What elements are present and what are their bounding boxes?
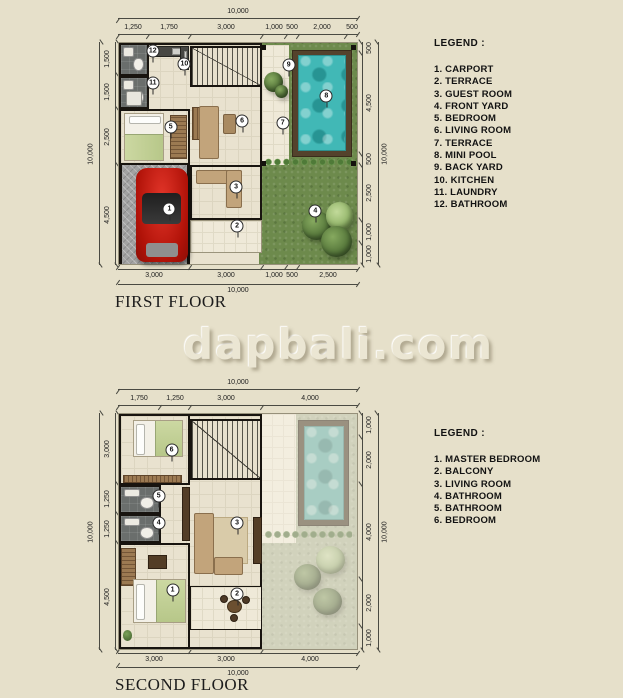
legend-item: 8. MINI POOL [434,150,619,162]
legend-item: 3. GUEST ROOM [434,89,619,101]
dimension-value: 1,000 [366,245,374,263]
ground-level-view-faded [259,414,357,649]
room-number-badge: 2 [231,587,244,600]
balcony-table [227,600,241,613]
dimension-value: 4,000 [301,656,319,664]
sf-dim-top-segments: 1,7501,2503,0004,000 [118,395,358,408]
dimension-value: 2,000 [366,452,374,470]
staircase [190,419,261,480]
dimension-value: 500 [366,42,374,54]
faded-hedge [264,529,352,540]
room-number-badge: 8 [320,89,333,102]
ff-dim-top-segments: 1,2501,7503,0001,0005002,000500 [118,24,358,37]
room-number-badge: 6 [236,115,249,128]
room-number-badge: 3 [231,517,244,530]
legend-item: 11. LAUNDRY [434,187,619,199]
living-room-sofa-l [214,557,243,575]
second-floor-legend: LEGEND : 1. MASTER BEDROOM2. BALCONY3. L… [434,428,619,528]
second-floor-plan: 123456 [118,413,358,650]
dimension-value: 4,000 [301,395,319,403]
master-bedroom-bed [133,579,185,624]
ff-dim-right-segments: 5004,5005002,5001,0001,000 [361,42,374,265]
room-number-badge: 7 [276,117,289,130]
legend-title: LEGEND : [434,428,619,439]
hedge-row [264,157,352,166]
dimension-value: 2,500 [319,272,337,280]
dimension-value: 4,500 [104,206,112,224]
mini-pool-deck [292,50,353,157]
legend-item: 2. TERRACE [434,76,619,88]
dimension-value: 2,500 [104,128,112,146]
dimension-value: 1,250 [104,490,112,508]
dimension-value: 2,000 [366,594,374,612]
watermark: dapbali.com [183,320,494,369]
bedroom-6-shelf [123,475,183,483]
ff-dim-left-total: 10,000 [88,42,101,265]
dimension-value: 1,500 [104,50,112,68]
dimension-value: 3,000 [217,272,235,280]
dimension-value: 2,500 [366,184,374,202]
sf-dim-left-total: 10,000 [88,413,101,650]
faded-tree [294,564,321,590]
dimension-value: 1,000 [366,416,374,434]
room-number-badge: 3 [230,180,243,193]
second-floor-label: SECOND FLOOR [115,675,249,695]
faded-pool-deck [298,420,349,526]
legend-item: 4. BATHROOM [434,491,619,503]
dimension-value: 500 [286,24,298,32]
hall-cabinet [182,487,190,541]
bedroom-5-bed [124,113,164,161]
dimension-value: 3,000 [217,395,235,403]
mini-pool-water [298,55,346,151]
dimension-value: 3,000 [217,656,235,664]
legend-item: 5. BEDROOM [434,113,619,125]
sf-dim-right-total: 10,000 [377,413,390,650]
legend-items: 1. CARPORT2. TERRACE3. GUEST ROOM4. FRON… [434,64,619,212]
legend-item: 6. LIVING ROOM [434,125,619,137]
legend-item: 9. BACK YARD [434,162,619,174]
dimension-value: 1,000 [366,629,374,647]
room-number-badge: 1 [166,584,179,597]
room-number-badge: 2 [231,220,244,233]
dimension-value: 500 [286,272,298,280]
staircase [190,46,261,87]
dimension-value: 4,000 [366,523,374,541]
dimension-value: 1,000 [265,272,283,280]
dimension-value: 1,000 [366,223,374,241]
room-number-badge: 4 [152,517,165,530]
dimension-value: 3,000 [217,24,235,32]
legend-item: 2. BALCONY [434,466,619,478]
room-number-badge: 4 [309,204,322,217]
first-floor-legend: LEGEND : 1. CARPORT2. TERRACE3. GUEST RO… [434,38,619,212]
ff-dim-left-segments: 1,5001,5002,5004,500 [104,42,117,265]
living-room-table [223,114,236,134]
dimension-value: 4,500 [104,588,112,606]
room-number-badge: 11 [146,76,159,89]
dimension-value: 500 [346,24,358,32]
legend-item: 7. TERRACE [434,138,619,150]
dimension-value: 1,750 [160,24,178,32]
sf-dim-left-segments: 3,0001,2501,2504,500 [104,413,117,650]
plant [123,630,133,641]
terrace-2-floor [190,220,261,253]
living-room-sofa [199,106,219,159]
room-number-badge: 6 [165,443,178,456]
dimension-value: 1,750 [130,395,148,403]
boundary-post [351,161,356,166]
dimension-value: 2,000 [313,24,331,32]
faded-tree-2 [313,588,342,615]
dimension-value: 4,500 [366,95,374,113]
legend-item: 3. LIVING ROOM [434,479,619,491]
dimension-value: 1,250 [124,24,142,32]
sf-dim-top-total: 10,000 [118,379,358,392]
sf-dim-bottom-segments: 3,0003,0004,000 [118,651,358,664]
dimension-value: 1,000 [265,24,283,32]
legend-item: 4. FRONT YARD [434,101,619,113]
car [136,168,188,262]
ff-dim-bottom-segments: 3,0003,0001,0005002,500 [118,267,358,280]
washing-machine [126,91,141,106]
faded-terrace [261,414,296,543]
first-floor-plan: 123456789101112 [118,42,358,265]
ff-dim-top-total: 10,000 [118,8,358,21]
room-number-badge: 5 [164,121,177,134]
living-room-sofa [194,513,214,574]
tv-cabinet [253,517,261,564]
room-number-badge: 9 [282,58,295,71]
first-floor-label: FIRST FLOOR [115,292,226,312]
boundary-post [351,45,356,50]
master-bedroom-desk [148,555,167,569]
balcony-chair [230,614,238,622]
room-number-badge: 1 [163,203,176,216]
faded-pool-water [304,426,344,520]
room-number-badge: 10 [178,57,191,70]
dimension-value: 1,250 [166,395,184,403]
dimension-value: 500 [366,153,374,165]
dimension-value: 3,000 [145,656,163,664]
legend-title: LEGEND : [434,38,619,49]
sf-dim-right-segments: 1,0002,0004,0002,0001,000 [361,413,374,650]
ff-dim-right-total: 10,000 [377,42,390,265]
dimension-value: 3,000 [145,272,163,280]
room-number-badge: 12 [146,44,159,57]
legend-item: 12. BATHROOM [434,199,619,211]
legend-item: 1. CARPORT [434,64,619,76]
legend-item: 10. KITCHEN [434,175,619,187]
legend-items: 1. MASTER BEDROOM2. BALCONY3. LIVING ROO… [434,454,619,528]
balcony-2-floor [190,586,261,631]
bathroom-12 [119,43,149,76]
legend-item: 1. MASTER BEDROOM [434,454,619,466]
legend-item: 6. BEDROOM [434,515,619,527]
faded-tree-light [316,546,345,574]
room-number-badge: 5 [152,490,165,503]
legend-item: 5. BATHROOM [434,503,619,515]
dimension-value: 1,500 [104,83,112,101]
dimension-value: 3,000 [104,440,112,458]
dimension-value: 1,250 [104,520,112,538]
floor-plan-sheet: dapbali.com 10,000 1,2501,7503,0001,0005… [0,0,623,698]
